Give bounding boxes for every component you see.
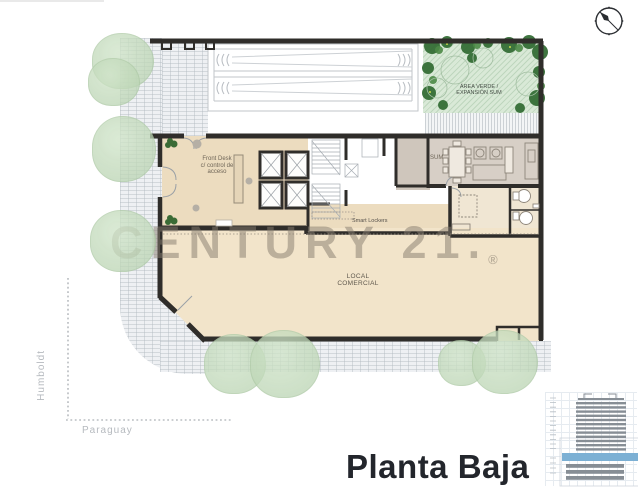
wood-deck <box>425 113 543 134</box>
tower-grid-backdrop <box>545 392 637 486</box>
watermark-brand: CENTURY 21. <box>110 217 488 268</box>
front-desk-line2: c/ control de <box>188 163 246 170</box>
sum-label: SUM <box>430 155 443 162</box>
registered-mark: ® <box>488 252 498 267</box>
compass-icon <box>595 7 624 36</box>
tree-icon <box>250 330 320 398</box>
front-desk-line3: acceso <box>188 169 246 176</box>
tree-icon <box>88 58 140 106</box>
street-label-humboldt: Humboldt <box>36 350 47 401</box>
sum-floor <box>428 136 543 186</box>
century21-watermark: CENTURY 21.® <box>110 217 498 269</box>
driveway-entry <box>162 43 208 136</box>
front-desk-floor <box>162 136 308 228</box>
front-desk-line1: Front Desk <box>188 156 246 163</box>
area-verde-line2: EXPANSIÓN SUM <box>446 90 512 96</box>
floor-plan-page: ÁREA VERDE / EXPANSIÓN SUM Front Desk c/… <box>0 0 638 490</box>
tree-icon <box>472 330 538 394</box>
vehicle-ramp <box>208 44 418 111</box>
area-verde-label: ÁREA VERDE / EXPANSIÓN SUM <box>446 84 512 96</box>
local-line2: COMERCIAL <box>326 280 390 287</box>
front-desk-label: Front Desk c/ control de acceso <box>188 156 246 176</box>
vestibule-floor <box>396 136 430 190</box>
street-label-paraguay: Paraguay <box>82 425 133 436</box>
local-comercial-label: LOCAL COMERCIAL <box>326 273 390 288</box>
tree-icon <box>92 116 156 182</box>
local-line1: LOCAL <box>326 273 390 280</box>
tree-icon <box>90 210 156 272</box>
green-area <box>423 40 543 113</box>
page-title: Planta Baja <box>346 448 529 486</box>
screen-edge-artifact <box>0 0 104 2</box>
